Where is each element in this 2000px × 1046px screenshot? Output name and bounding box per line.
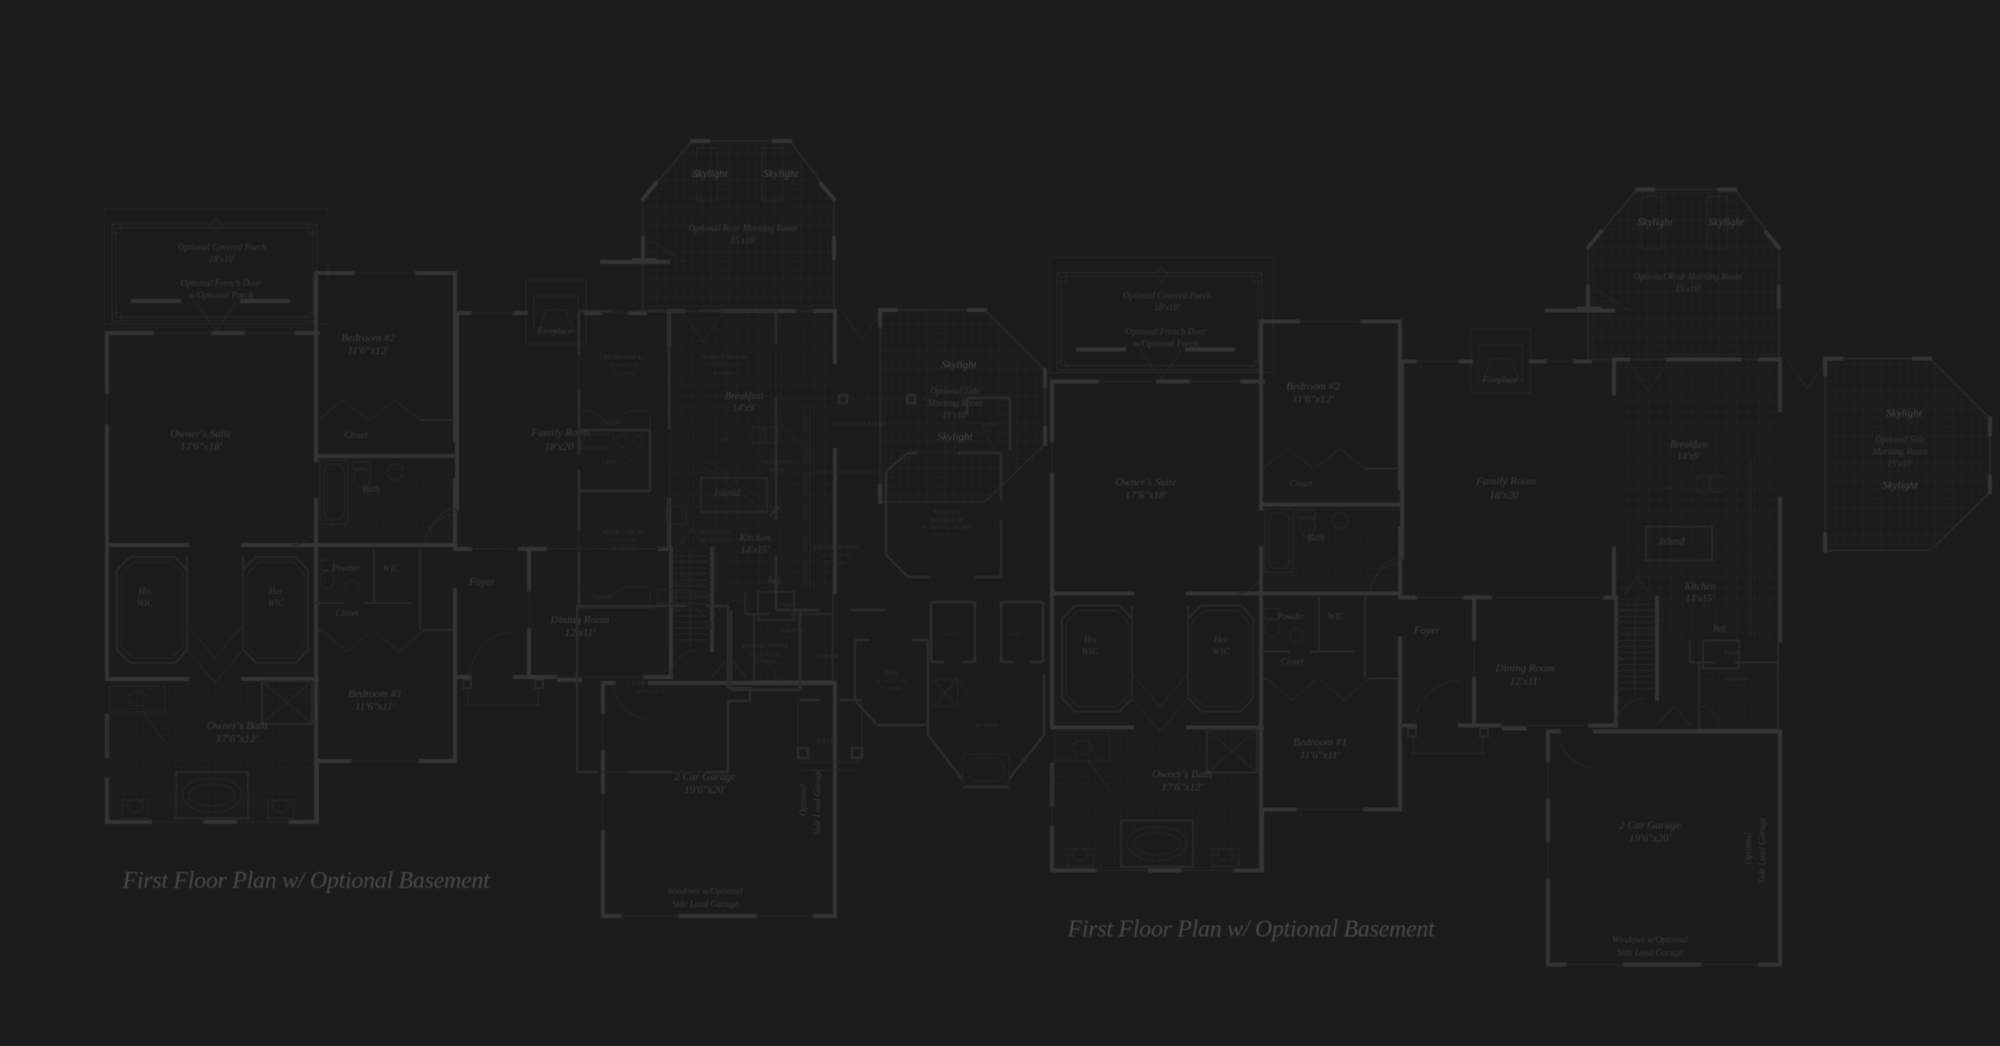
svg-text:UTILITY: UTILITY bbox=[690, 594, 712, 599]
svg-text:CLOSET: CLOSET bbox=[594, 596, 615, 601]
svg-text:DINING ROOM: DINING ROOM bbox=[742, 644, 787, 650]
svg-text:M. BATH: M. BATH bbox=[976, 724, 998, 729]
svg-text:W.I.C.: W.I.C. bbox=[945, 633, 960, 638]
svg-text:9' CLNG: 9' CLNG bbox=[714, 372, 734, 377]
svg-text:KITCHEN: KITCHEN bbox=[701, 530, 730, 536]
svg-text:FOYER: FOYER bbox=[817, 654, 839, 660]
svg-text:W.I.C.: W.I.C. bbox=[1008, 633, 1023, 638]
svg-text:BEDROOM: BEDROOM bbox=[931, 518, 964, 524]
svg-text:10'-4"x12'-0": 10'-4"x12'-0" bbox=[701, 539, 732, 544]
svg-text:CLOSET: CLOSET bbox=[602, 421, 623, 426]
svg-text:2 CAR GARAGE: 2 CAR GARAGE bbox=[627, 681, 675, 687]
svg-text:LIVING ROOM: LIVING ROOM bbox=[814, 545, 859, 551]
svg-text:11'-0"x13'-0": 11'-0"x13'-0" bbox=[609, 364, 639, 369]
svg-text:BEDROOM #2: BEDROOM #2 bbox=[603, 355, 645, 361]
svg-text:BATH: BATH bbox=[602, 461, 616, 466]
svg-text:13'-4"x17'-0": 13'-4"x17'-0" bbox=[932, 533, 963, 538]
svg-text:BATH: BATH bbox=[982, 424, 996, 429]
svg-text:12' CLNG: 12' CLNG bbox=[753, 660, 776, 665]
svg-text:DEN: DEN bbox=[884, 671, 898, 677]
svg-text:W/ TREY CLNG ABV: W/ TREY CLNG ABV bbox=[921, 526, 972, 531]
svg-text:12'-0"x18'-0": 12'-0"x18'-0" bbox=[821, 554, 852, 559]
svg-text:12' CLNG: 12' CLNG bbox=[879, 687, 902, 692]
svg-text:12'-10"x11'-6": 12'-10"x11'-6" bbox=[874, 680, 907, 685]
svg-text:12'-4"x11'-0": 12'-4"x11'-0" bbox=[608, 539, 638, 544]
svg-text:11' CLNG: 11' CLNG bbox=[613, 372, 636, 377]
svg-text:11' CLNG: 11' CLNG bbox=[612, 547, 635, 552]
svg-text:17'-10"x16'-0": 17'-10"x16'-0" bbox=[707, 364, 740, 369]
svg-text:FAMILY ROOM: FAMILY ROOM bbox=[701, 355, 747, 361]
svg-text:ENTRY: ENTRY bbox=[817, 739, 839, 745]
svg-text:BEDROOM #3: BEDROOM #3 bbox=[602, 530, 644, 536]
svg-text:19'-4"x21'-0": 19'-4"x21'-0" bbox=[636, 690, 667, 695]
svg-text:MASTER: MASTER bbox=[934, 510, 961, 516]
svg-text:12' CLNG: 12' CLNG bbox=[824, 562, 847, 567]
svg-text:COVERED PATIO: COVERED PATIO bbox=[834, 422, 886, 428]
svg-text:12'-10"x12'-6": 12'-10"x12'-6" bbox=[748, 653, 781, 658]
